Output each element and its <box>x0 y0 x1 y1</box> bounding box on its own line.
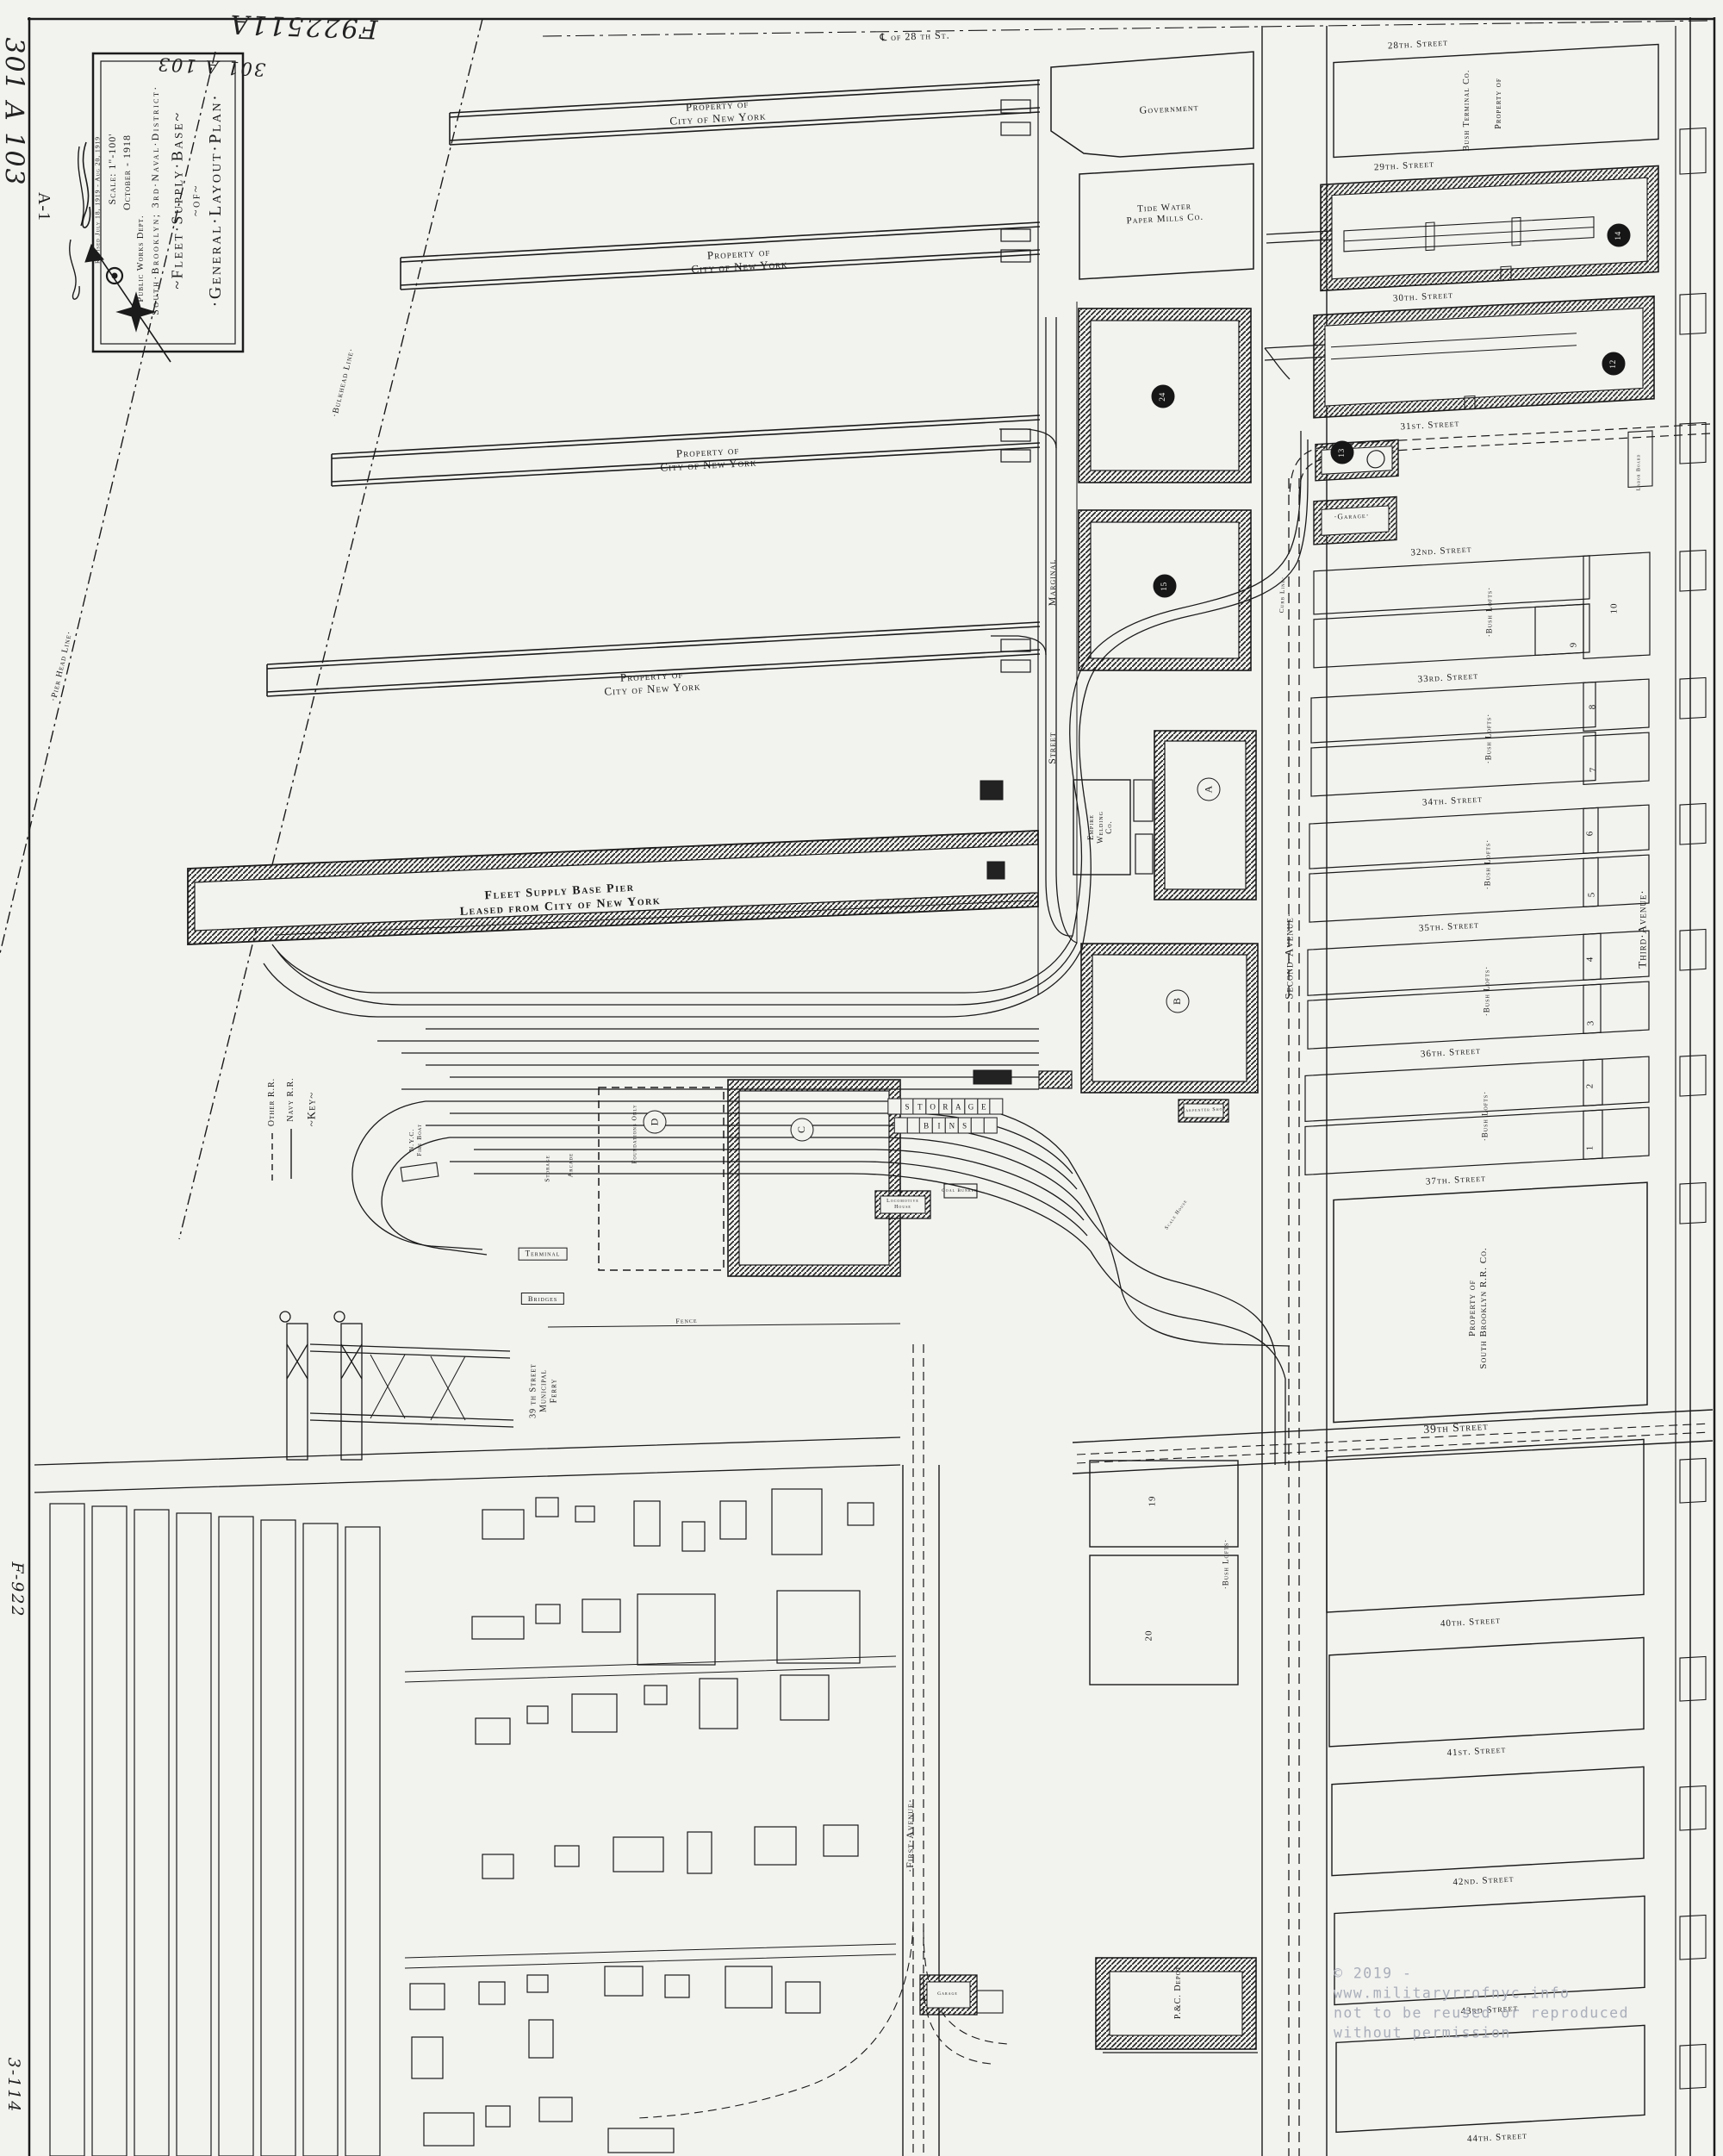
title-scale: Scale: 1"-100' <box>106 134 118 205</box>
street-32: 32nd. Street <box>1410 545 1472 559</box>
street-29: 29th. Street <box>1374 159 1435 174</box>
street-42: 42nd. Street <box>1452 1874 1515 1889</box>
archive-number-left: 301 A 103 <box>0 37 29 186</box>
pier-head-line-label: ·Pier Head Line· <box>49 630 75 702</box>
loft-no-19: 19 <box>1148 1496 1159 1507</box>
garage-label: ·Garage· <box>1334 511 1370 522</box>
loft-no-8: 8 <box>1588 704 1599 710</box>
empire-welding-label: Empire Welding Co. <box>1086 811 1114 844</box>
first-avenue-label: ·First·Avenue· <box>904 1798 916 1872</box>
key-other-rr: Other R.R. <box>267 1078 277 1126</box>
loft-no-3: 3 <box>1586 1020 1597 1026</box>
bush-lofts-west: ·Bush Lofts· <box>1222 1539 1231 1589</box>
labor-board-label: Labor Board <box>1636 454 1642 491</box>
pier-2-label: Property of City of New York <box>690 245 788 277</box>
loft-no-7: 7 <box>1589 767 1600 773</box>
title-revised: Revised July 18, 1919 - Aug 20, 1919 <box>95 136 103 264</box>
street-30: 30th. Street <box>1393 290 1454 305</box>
pier-3-label: Property of City of New York <box>659 443 757 475</box>
locomotive-house-label: Locomotive House <box>886 1199 919 1211</box>
archive-f-number: F922511A <box>228 8 378 43</box>
map-labels-layer: 301 A 103F922511A301 A 103A-1F-9223-114·… <box>0 0 1723 2156</box>
title-date: October - 1918 <box>121 134 133 210</box>
title-dept: Public Works Dept. <box>136 215 146 302</box>
loft-no-6: 6 <box>1585 831 1596 837</box>
title-district: South·Brooklyn; 3rd·Naval·District· <box>151 84 163 315</box>
third-avenue-label: Third·Avenue· <box>1635 889 1648 968</box>
fence-label: Fence <box>675 1317 697 1325</box>
key-navy-rr: Navy R.R. <box>286 1077 296 1121</box>
bush-property-label-1: Property of <box>1494 78 1504 128</box>
pc-depot-label: P.&C. Depot <box>1173 1966 1184 2019</box>
marginal-street-label: Street <box>1046 732 1058 764</box>
title-line-1: ·General·Layout·Plan· <box>206 93 227 308</box>
street-39: 39th Street <box>1423 1419 1489 1436</box>
centerline-28th: ℄ of 28 th St. <box>880 29 950 44</box>
fire-boat-label: N.Y.C. Fire Boat <box>408 1124 424 1156</box>
bush-lofts-32: ·Bush Lofts· <box>1485 587 1495 637</box>
government-label: Government <box>1139 101 1199 116</box>
loft-no-5: 5 <box>1587 892 1598 898</box>
loft-no-9: 9 <box>1569 642 1580 648</box>
street-28: 28th. Street <box>1388 38 1449 53</box>
warehouse-13-marker: 13 <box>1331 441 1354 464</box>
warehouse-12-marker: 12 <box>1602 352 1626 376</box>
scale-house-label: Scale House <box>1164 1199 1189 1231</box>
curb-line-label: Curb Line· <box>1278 576 1287 614</box>
street-33: 33rd. Street <box>1417 671 1478 686</box>
watermark-line-3: not to be reused or reproduced <box>1334 2004 1629 2021</box>
arcade-label: Arcade <box>568 1153 575 1177</box>
storage-label: Storage <box>544 1155 552 1181</box>
warehouse-14-marker: 14 <box>1608 224 1631 247</box>
pier-4-label: Property of City of New York <box>603 667 701 699</box>
street-40: 40th. Street <box>1440 1616 1502 1630</box>
street-36: 36th. Street <box>1421 1046 1482 1061</box>
terminal-label: Terminal <box>519 1248 568 1261</box>
loft-no-2: 2 <box>1585 1083 1596 1089</box>
loft-no-4: 4 <box>1585 956 1596 963</box>
street-44: 44th. Street <box>1467 2131 1528 2146</box>
file-f922: F-922 <box>8 1561 27 1617</box>
bush-lofts-33: ·Bush Lofts· <box>1484 713 1494 763</box>
title-line-2: ~Fleet·Supply·Base~ <box>168 110 186 289</box>
street-34: 34th. Street <box>1422 794 1484 809</box>
building-b-marker: B <box>1166 990 1190 1013</box>
pier-1-label: Property of City of New York <box>669 97 767 128</box>
bulkhead-line-label: ·Bulkhead Line· <box>330 347 357 419</box>
archive-number-top: 301 A 103 <box>156 53 266 79</box>
key-title: ~Key~ <box>304 1092 317 1126</box>
street-41: 41st. Street <box>1446 1745 1506 1760</box>
sbrr-label: Property of South Brooklyn R.R. Co. <box>1467 1247 1490 1368</box>
street-35: 35th. Street <box>1419 920 1480 935</box>
carpenter-shop-label: Carpenter Shop <box>1181 1107 1226 1115</box>
warehouse-15-marker: 15 <box>1154 575 1177 598</box>
pier-5-label: Fleet Supply Base Pier Leased from City … <box>458 880 661 919</box>
watermark-line-2: www.militaryrrofnyc.info <box>1334 1985 1570 2001</box>
bush-lofts-34: ·Bush Lofts· <box>1484 839 1493 889</box>
storage-bins-row-1: STORAGE <box>888 1099 1003 1115</box>
marginal-label: Marginal <box>1046 559 1058 607</box>
bush-property-label-2: Bush Terminal Co. <box>1462 70 1472 152</box>
street-37: 37th. Street <box>1426 1174 1487 1188</box>
foundations-only-label: Foundations Only <box>631 1104 639 1163</box>
loft-no-10: 10 <box>1609 603 1620 614</box>
watermark-line-1: © 2019 - <box>1334 1965 1412 1981</box>
file-3114: 3-114 <box>4 2058 23 2114</box>
building-d-marker: D <box>644 1111 667 1134</box>
loft-no-1: 1 <box>1585 1145 1596 1151</box>
title-of: ~of~ <box>190 184 205 216</box>
sheet-a1: A-1 <box>33 192 53 221</box>
second-avenue-label: ·Second·Avenue· <box>1282 913 1295 1004</box>
bridges-label: Bridges <box>521 1293 564 1305</box>
garage-small-label: Garage <box>937 1991 958 1997</box>
building-a-marker: A <box>1197 778 1221 801</box>
tide-water-label: Tide Water Paper Mills Co. <box>1126 201 1204 227</box>
storage-bins-row-2: BINS <box>895 1118 998 1134</box>
watermark-line-4: without permission <box>1334 2024 1511 2041</box>
building-c-marker: C <box>791 1119 814 1142</box>
warehouse-24-marker: 24 <box>1152 385 1175 408</box>
loft-no-20: 20 <box>1144 1630 1155 1642</box>
ferry-label: 39 th Street Municipal Ferry <box>528 1363 558 1418</box>
fleet-supply-base-map: 301 A 103F922511A301 A 103A-1F-9223-114·… <box>0 0 1723 2156</box>
bush-lofts-35: ·Bush Lofts· <box>1483 966 1492 1016</box>
street-31: 31st. Street <box>1400 419 1459 433</box>
coal-bunker-label: Coal Bunker <box>942 1188 978 1193</box>
bush-lofts-36: ·Bush Lofts· <box>1481 1091 1490 1141</box>
